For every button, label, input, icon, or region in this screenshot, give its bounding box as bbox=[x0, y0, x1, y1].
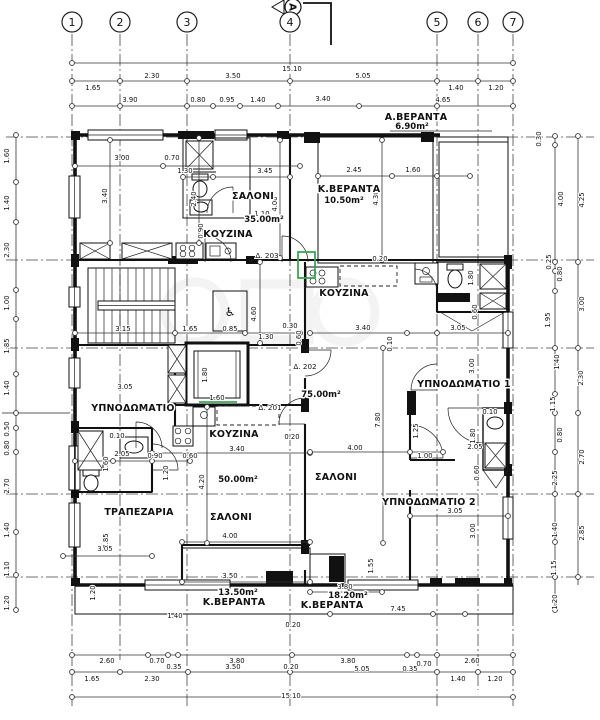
dimension-text: 1.30 bbox=[177, 167, 192, 175]
dimension-text: 2.60 bbox=[464, 657, 479, 665]
fixture-icons: ♿ bbox=[225, 305, 236, 319]
dimension-text: 3.40 bbox=[101, 188, 109, 203]
room-label: ΥΠΝΟΔΩΜΑΤΙΟ 2 bbox=[381, 497, 476, 508]
dimension-text: 1.60 bbox=[209, 394, 224, 402]
dimension-text: 2.45 bbox=[346, 166, 361, 174]
counter bbox=[80, 243, 110, 259]
sink-icon bbox=[206, 243, 236, 259]
closet bbox=[480, 293, 506, 309]
window-icon bbox=[69, 503, 80, 547]
grid-bubble-label: 4 bbox=[287, 16, 294, 29]
room-label: ΣΑΛΟΝΙ bbox=[232, 191, 274, 202]
grid-bubble-label: 2 bbox=[117, 16, 124, 29]
dimension-text: 2.40 bbox=[190, 191, 198, 206]
floor-plan: A 1234567 15.101.652.303.505.051.401.203… bbox=[0, 0, 600, 720]
dimension-text: 3.00 bbox=[114, 154, 129, 162]
dimension-text: 0.60 bbox=[295, 330, 303, 345]
dimension-text: 3.15 bbox=[115, 325, 130, 333]
dimension-text: 4.60 bbox=[250, 306, 258, 321]
wheelchair-icon: ♿ bbox=[225, 305, 236, 319]
dimension-text: 0.10 bbox=[109, 432, 124, 440]
dimension-text: 3.50 bbox=[225, 72, 240, 80]
grid-bubble-label: 5 bbox=[434, 16, 441, 29]
dimension-text: 0.80 bbox=[190, 96, 205, 104]
dimension-text: 3.40 bbox=[229, 445, 244, 453]
dimension-text: 2.30 bbox=[577, 370, 585, 385]
dimension-text: 1.15 bbox=[550, 560, 558, 575]
dimension-text: 1.40 bbox=[450, 675, 465, 683]
dimension-text: 3.05 bbox=[447, 507, 462, 515]
dimension-text: 1.80 bbox=[469, 428, 477, 443]
dimension-text: 0.95 bbox=[219, 96, 234, 104]
dimension-text: 1.80 bbox=[467, 270, 475, 285]
dimension-text: 3.50 bbox=[225, 663, 240, 671]
dimension-text: 0.80 bbox=[556, 427, 564, 442]
dimension-text: 1.10 bbox=[3, 561, 11, 576]
dimension-text: 1.40 bbox=[3, 522, 11, 537]
dimension-text: 3.05 bbox=[97, 545, 112, 553]
window-icon bbox=[503, 312, 513, 348]
room-label: ΚΟΥΖΙΝΑ bbox=[203, 229, 253, 240]
dimension-text: 1.15 bbox=[549, 396, 557, 411]
dimension-text: 2.30 bbox=[144, 675, 159, 683]
room-label: ΚΟΥΖΙΝΑ bbox=[319, 288, 369, 299]
dimension-text: 1.20 bbox=[89, 585, 97, 600]
dimension-text: 1.30 bbox=[258, 333, 273, 341]
window-icon bbox=[69, 287, 80, 307]
dimension-text: 0.60 bbox=[473, 465, 481, 480]
dimension-text: 3.40 bbox=[355, 324, 370, 332]
bathroom-bottom-right bbox=[483, 408, 508, 488]
shower-icon bbox=[186, 141, 213, 169]
dimension-text: 1.25 bbox=[412, 423, 420, 438]
dimension-text: 4.25 bbox=[578, 192, 586, 207]
grid-bubble-label: 3 bbox=[184, 16, 191, 29]
dimension-text: 0.70 bbox=[149, 657, 164, 665]
grid-bubbles: 1234567 bbox=[62, 12, 523, 32]
shower-icon bbox=[78, 431, 103, 470]
dimension-text: 3.05 bbox=[450, 324, 465, 332]
dimension-text: 3.00 bbox=[469, 523, 477, 538]
dimension-text: 1.40 bbox=[3, 380, 11, 395]
dimension-text: 0.80 bbox=[3, 440, 11, 455]
dimension-text: 3.50 bbox=[222, 572, 237, 580]
grid-bubble-label: 1 bbox=[69, 16, 76, 29]
shower-icon bbox=[485, 443, 506, 468]
dimension-text: 0.80 bbox=[556, 266, 564, 281]
dimension-text: 1.20 bbox=[488, 84, 503, 92]
area-label: 10.50m² bbox=[324, 196, 364, 206]
sink-icon bbox=[193, 407, 215, 426]
room-label: ΥΠΝΟΔΩΜΑΤΙΟ bbox=[90, 403, 174, 414]
dimension-text: 4.00 bbox=[557, 191, 565, 206]
door-label: Δ. 201 bbox=[258, 403, 281, 412]
dimension-text: 2.85 bbox=[578, 525, 586, 540]
dimension-text: 7.80 bbox=[374, 412, 382, 427]
dimension-text: 3.45 bbox=[257, 167, 272, 175]
dimension-text: 7.45 bbox=[390, 605, 405, 613]
dimension-text: 0.20 bbox=[372, 255, 387, 263]
dimension-text: 1.20 bbox=[3, 595, 11, 610]
area-label: 75.00m² bbox=[301, 390, 341, 400]
dimension-text: 0.10 bbox=[482, 408, 497, 416]
dimension-text: 1.80 bbox=[201, 367, 209, 382]
window-icon bbox=[69, 176, 80, 218]
dimension-text: 1.60 bbox=[405, 166, 420, 174]
dimension-text: 0.70 bbox=[164, 154, 179, 162]
window-icon bbox=[145, 580, 230, 590]
kitchen-middle bbox=[306, 263, 438, 287]
room-label: ΥΠΝΟΔΩΜΑΤΙΟ 1 bbox=[416, 379, 511, 390]
dimension-text: 2.30 bbox=[144, 72, 159, 80]
grid-bubble-label: 7 bbox=[510, 16, 517, 29]
dimension-text: 1.00 bbox=[417, 452, 432, 460]
dimension-text: 0.90 bbox=[147, 452, 162, 460]
area-label: 50.00m² bbox=[218, 475, 258, 485]
area-label: 13.50m² bbox=[218, 588, 258, 598]
room-label: Κ.ΒΕΡΑΝΤΑ bbox=[301, 600, 364, 611]
verandas bbox=[75, 137, 513, 614]
stove-icon bbox=[173, 426, 193, 446]
dimension-text: 0.20 bbox=[284, 433, 299, 441]
dimension-text: 5.05 bbox=[354, 665, 369, 673]
dimension-text: 0.60 bbox=[182, 452, 197, 460]
dimension-text: 1.40 bbox=[553, 354, 561, 369]
wc-icon bbox=[84, 475, 98, 491]
door-label: Δ. 203 bbox=[255, 251, 278, 260]
dimension-text: 1.65 bbox=[182, 325, 197, 333]
covered-veranda-bottom bbox=[75, 586, 513, 614]
dimension-text: 3.40 bbox=[315, 95, 330, 103]
dimension-text: 15.10 bbox=[281, 692, 300, 700]
dimension-text: 2.70 bbox=[578, 449, 586, 464]
dimension-text: 4.00 bbox=[347, 444, 362, 452]
dimension-text: 1.65 bbox=[85, 84, 100, 92]
dimension-text: 0.20 bbox=[283, 663, 298, 671]
dimension-text: 1.40 bbox=[551, 522, 559, 537]
room-label: Κ.ΒΕΡΑΝΤΑ bbox=[318, 184, 381, 195]
dimension-text: 15.10 bbox=[282, 65, 301, 73]
section-marker-label: A bbox=[287, 3, 298, 11]
dimension-text: 0.70 bbox=[416, 660, 431, 668]
wc-icon bbox=[448, 270, 462, 288]
door-label: Δ. 202 bbox=[293, 362, 316, 371]
dimension-text: 2.25 bbox=[551, 470, 559, 485]
shower-icon bbox=[480, 264, 506, 289]
area-label: 35.00m² bbox=[244, 215, 284, 225]
dimension-text: 3.80 bbox=[340, 657, 355, 665]
dimension-text: 1.60 bbox=[3, 148, 11, 163]
dimension-text: 1.40 bbox=[167, 612, 182, 620]
dimension-text: 3.90 bbox=[122, 96, 137, 104]
dimension-text: 0.60 bbox=[471, 304, 479, 319]
room-label: ΣΑΛΟΝΙ bbox=[210, 512, 252, 523]
dimension-text: 1.40 bbox=[3, 195, 11, 210]
dimension-text: 0.35 bbox=[402, 665, 417, 673]
dimension-text: 1.65 bbox=[84, 675, 99, 683]
dimension-text: 0.30 bbox=[282, 322, 297, 330]
dimension-text: 3.80 bbox=[337, 583, 352, 591]
dimension-text: 4.00 bbox=[222, 532, 237, 540]
dimension-text: 1.55 bbox=[367, 558, 375, 573]
dimension-text: 1.60 bbox=[102, 456, 110, 471]
dimension-text: 1.00 bbox=[3, 295, 11, 310]
dimension-text: 1.85 bbox=[3, 338, 11, 353]
dimension-text: 0.35 bbox=[166, 663, 181, 671]
stove-icon bbox=[306, 267, 338, 287]
dimension-text: 1.40 bbox=[250, 96, 265, 104]
dimension-text: 0.10 bbox=[386, 336, 394, 351]
room-label: ΚΟΥΖΙΝΑ bbox=[209, 429, 259, 440]
dimension-text: 3.00 bbox=[578, 296, 586, 311]
dimension-text: 0.50 bbox=[3, 421, 11, 436]
dimension-text: 3.00 bbox=[468, 358, 476, 373]
open-veranda-strip bbox=[439, 142, 508, 257]
area-label: 6.90m² bbox=[395, 122, 429, 132]
dimension-text: 2.05 bbox=[467, 443, 482, 451]
room-label: ΤΡΑΠΕΖΑΡΙΑ bbox=[104, 507, 174, 518]
staircase bbox=[88, 268, 175, 343]
dimension-text: 1.20 bbox=[162, 465, 170, 480]
dimension-text: 1.95 bbox=[544, 312, 552, 327]
window-icon bbox=[348, 580, 418, 590]
dimension-text: 1.20 bbox=[487, 675, 502, 683]
dimension-text: 2.30 bbox=[3, 242, 11, 257]
dimension-text: 0.25 bbox=[545, 254, 553, 269]
grid-bubble-label: 6 bbox=[475, 16, 482, 29]
dimension-text: 4.20 bbox=[198, 474, 206, 489]
shaft-hatch bbox=[168, 345, 186, 403]
area-label: 18.20m² bbox=[328, 591, 368, 601]
room-label: Κ.ΒΕΡΑΝΤΑ bbox=[203, 597, 266, 608]
kitchen-top bbox=[80, 243, 236, 259]
wc-icon bbox=[487, 417, 503, 429]
dimension-text: 0.85 bbox=[222, 325, 237, 333]
dimension-text: 0.20 bbox=[285, 621, 300, 629]
dimension-text: 4.65 bbox=[435, 96, 450, 104]
dimension-text: 2.60 bbox=[99, 657, 114, 665]
dimension-text: 3.05 bbox=[117, 383, 132, 391]
window-icon bbox=[88, 130, 163, 140]
dimension-text: 2.70 bbox=[3, 478, 11, 493]
dimension-text: 0.30 bbox=[535, 131, 543, 146]
kitchen-bottom-left bbox=[173, 406, 279, 446]
dimension-text: 1.40 bbox=[448, 84, 463, 92]
dimension-text: 1.20 bbox=[551, 594, 559, 609]
window-icon bbox=[69, 358, 80, 388]
dimension-text: 2.05 bbox=[114, 450, 129, 458]
room-label: ΣΑΛΟΝΙ bbox=[315, 472, 357, 483]
dimension-text: 5.05 bbox=[355, 72, 370, 80]
counter bbox=[122, 243, 172, 259]
